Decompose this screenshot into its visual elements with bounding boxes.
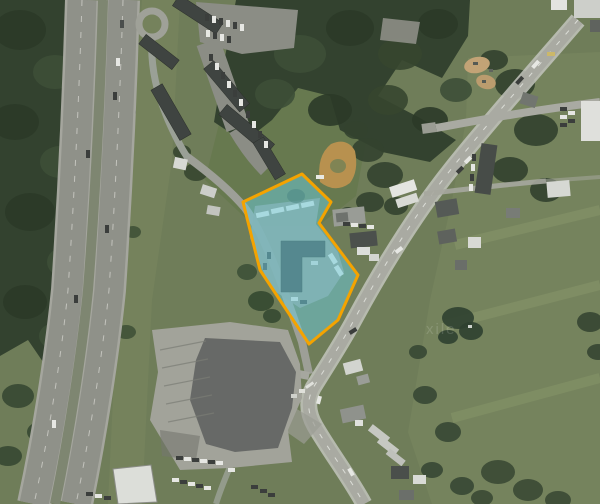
tree-canopy — [413, 386, 437, 404]
shed — [369, 254, 379, 261]
vehicle — [228, 468, 235, 472]
house-roof — [546, 180, 570, 198]
vehicle — [216, 461, 223, 465]
vehicle — [351, 223, 358, 227]
vehicle — [264, 141, 268, 148]
commercial-building — [581, 101, 600, 141]
ballpark-parking — [421, 122, 436, 134]
tree-canopy — [255, 79, 295, 109]
vehicle — [86, 150, 90, 158]
tree-canopy — [492, 157, 528, 183]
house-roof — [391, 466, 409, 479]
tree-canopy — [418, 9, 458, 39]
vehicle — [470, 174, 474, 181]
vehicle — [104, 496, 111, 500]
tree-canopy — [263, 309, 281, 323]
tree-canopy — [367, 162, 403, 188]
vehicle — [568, 119, 575, 123]
house-roof — [349, 231, 377, 249]
vehicle — [239, 99, 243, 106]
vehicle — [547, 52, 555, 56]
forest-clearing-lot — [380, 18, 420, 44]
vehicle — [233, 90, 237, 97]
vehicle — [116, 58, 120, 66]
vehicle — [472, 154, 476, 161]
tree-canopy — [3, 285, 47, 319]
play-equipment — [489, 69, 493, 72]
lot-asphalt-patch — [190, 338, 296, 452]
vehicle — [299, 389, 305, 393]
vehicle — [200, 459, 207, 463]
tree-canopy — [513, 479, 543, 501]
tree-canopy — [409, 345, 427, 359]
vehicle — [359, 224, 366, 228]
tree-canopy — [450, 477, 474, 495]
vehicle — [180, 480, 187, 484]
shed — [355, 420, 363, 426]
vehicle — [252, 121, 256, 128]
building-roof — [551, 0, 567, 10]
vehicle — [86, 492, 93, 496]
building-roof — [574, 0, 600, 18]
tree-canopy — [308, 94, 352, 126]
tree-canopy — [248, 291, 274, 311]
tree-canopy — [440, 78, 472, 102]
house-roof — [506, 208, 520, 218]
vehicle — [188, 482, 195, 486]
tree-canopy — [352, 138, 384, 162]
vehicle — [291, 394, 297, 398]
vehicle — [209, 54, 213, 61]
house-roof-section — [336, 212, 349, 222]
vehicle — [192, 458, 199, 462]
vehicle — [560, 107, 567, 111]
satellite-map-view: xile — [0, 0, 600, 504]
house-roof — [468, 237, 481, 248]
play-equipment — [482, 80, 486, 83]
vehicle — [212, 16, 216, 23]
house-roof — [399, 490, 414, 500]
tree-canopy — [368, 85, 408, 115]
vehicle — [240, 24, 244, 31]
vehicle — [251, 485, 258, 489]
vehicle — [560, 123, 567, 127]
vehicle — [120, 20, 124, 28]
vehicle — [206, 30, 210, 37]
vehicle — [219, 18, 223, 25]
vehicle — [172, 478, 179, 482]
vehicle — [95, 494, 102, 498]
tree-canopy — [237, 264, 257, 280]
tree-canopy — [459, 322, 483, 340]
map-canvas[interactable]: xile — [0, 0, 600, 504]
vehicle — [260, 489, 267, 493]
play-equipment — [473, 62, 478, 65]
vehicle — [221, 72, 225, 79]
vehicle — [213, 32, 217, 39]
tree-canopy — [514, 114, 558, 146]
vehicle — [469, 184, 473, 191]
bleachers — [316, 175, 324, 179]
vehicle — [258, 131, 262, 138]
tree-canopy — [481, 460, 515, 484]
shed — [413, 475, 426, 484]
tree-canopy — [435, 422, 461, 442]
vehicle — [268, 493, 275, 497]
vehicle — [343, 222, 350, 226]
white-speck — [468, 325, 472, 328]
infield-grass — [330, 159, 346, 173]
vehicle — [204, 486, 211, 490]
vehicle — [105, 225, 109, 233]
building-roof — [590, 20, 600, 32]
white-building — [113, 465, 157, 504]
vehicle — [208, 460, 215, 464]
watermark: xile — [426, 321, 457, 338]
vehicle — [367, 225, 374, 229]
imagery-watermark: xile — [426, 321, 457, 338]
vehicle — [176, 456, 183, 460]
vehicle — [52, 420, 56, 428]
vehicle — [220, 34, 224, 41]
vehicle — [215, 63, 219, 70]
vehicle — [471, 164, 475, 171]
vehicle — [184, 457, 191, 461]
house-roof — [455, 260, 467, 270]
tree-canopy — [2, 384, 34, 408]
vehicle — [560, 115, 567, 119]
vehicle — [233, 22, 237, 29]
vehicle — [74, 295, 78, 303]
vehicle — [205, 14, 209, 21]
tree-canopy — [326, 10, 374, 46]
vehicle — [227, 36, 231, 43]
vehicle — [568, 111, 575, 115]
vehicle — [246, 111, 250, 118]
vehicle — [227, 81, 231, 88]
vehicle — [226, 20, 230, 27]
vehicle — [113, 92, 117, 100]
tree-canopy — [344, 121, 368, 139]
shed — [357, 247, 370, 255]
tree-canopy — [5, 193, 55, 231]
vehicle — [196, 484, 203, 488]
